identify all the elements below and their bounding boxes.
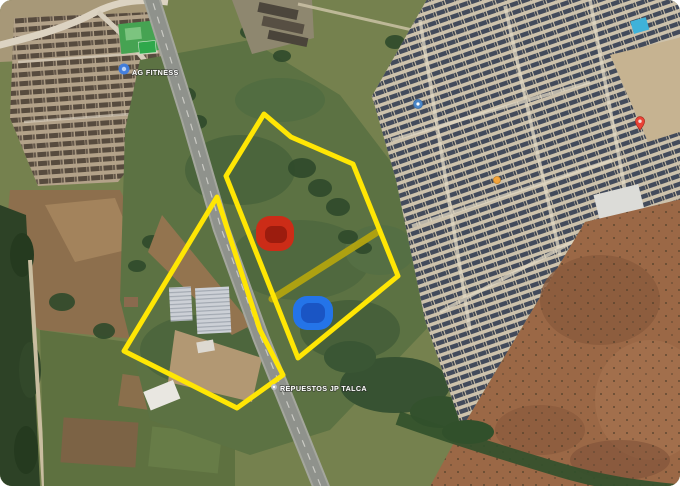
fitness-label: AG FITNESS bbox=[132, 68, 179, 77]
blue-area-marker-core bbox=[301, 303, 325, 323]
satellite-basemap bbox=[0, 0, 680, 486]
repuestos-place-icon-core bbox=[273, 386, 275, 388]
map-canvas: AG FITNESS REPUESTOS JP TALCA bbox=[0, 0, 680, 486]
red-area-marker-core bbox=[265, 226, 287, 243]
satellite-map-image[interactable]: AG FITNESS REPUESTOS JP TALCA bbox=[0, 0, 680, 486]
repuestos-label: REPUESTOS JP TALCA bbox=[280, 384, 367, 393]
orange-poi-dot bbox=[494, 177, 501, 184]
blue-poi-dot-glyph bbox=[416, 102, 419, 105]
fitness-place-icon-core bbox=[122, 67, 126, 71]
